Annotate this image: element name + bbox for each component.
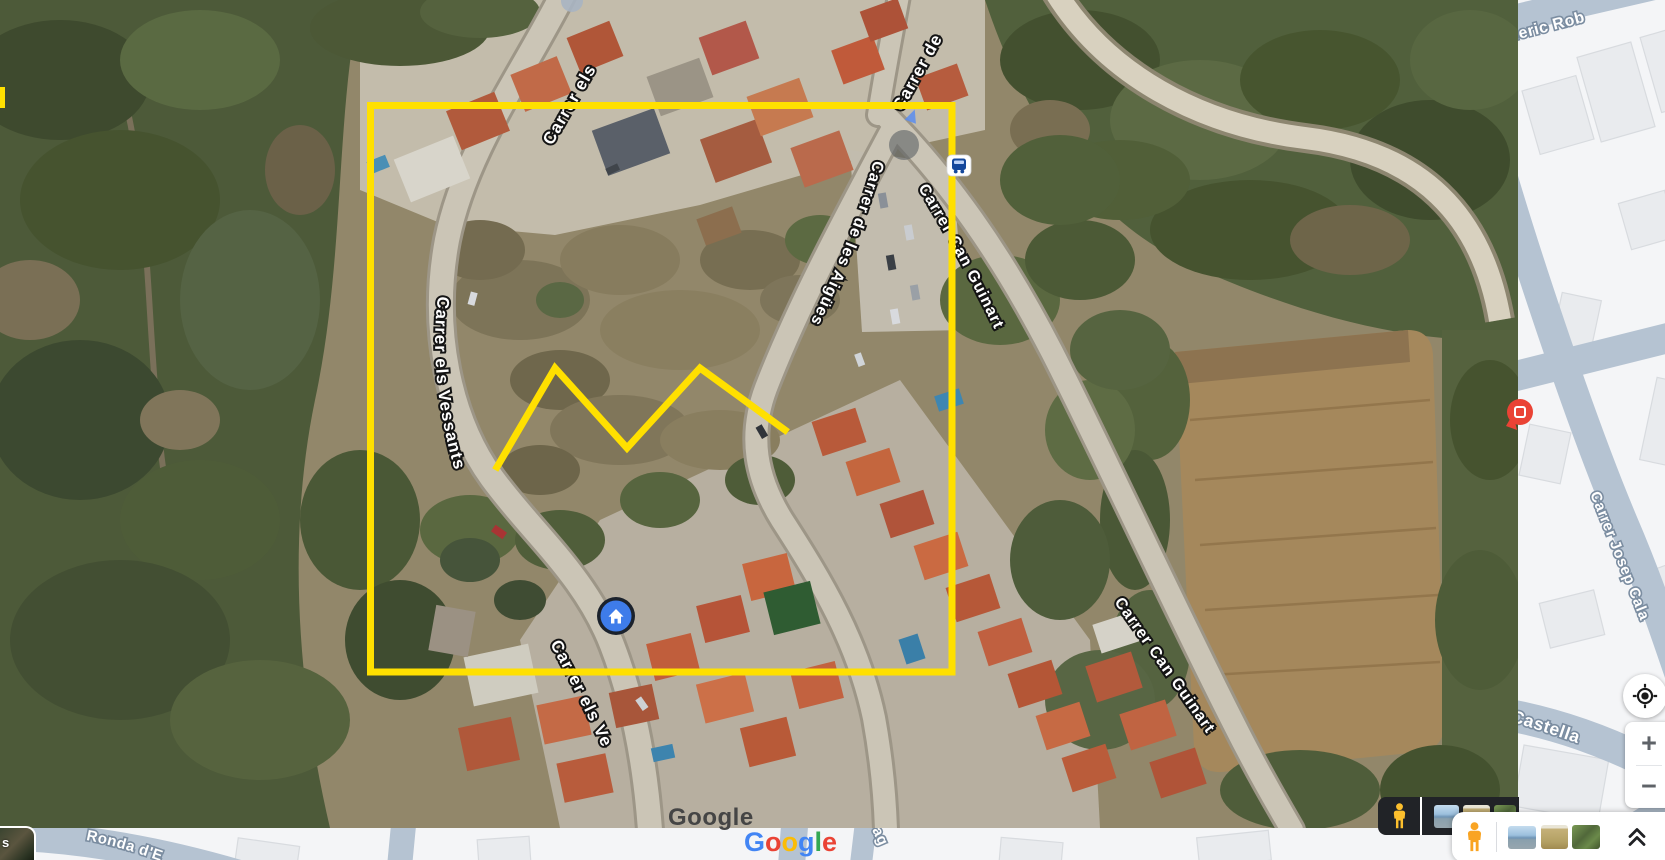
my-location-icon — [1632, 683, 1658, 709]
google-watermark: Google — [668, 804, 754, 832]
google-maps-canvas[interactable]: oderic Rob Carrer Josep Cala r Castella … — [0, 0, 1665, 860]
route-node-top[interactable] — [561, 0, 583, 12]
photo-bar-light — [1452, 812, 1665, 860]
my-location-button[interactable] — [1623, 674, 1665, 718]
zoom-in-button[interactable]: + — [1625, 722, 1665, 765]
google-logo[interactable]: Google — [744, 827, 837, 858]
layers-preview-thumbnail[interactable]: s — [0, 826, 36, 860]
photo-thumbnail-coastline[interactable] — [1508, 826, 1536, 849]
bus-stop-marker[interactable] — [947, 155, 971, 176]
zoom-control: + − — [1625, 722, 1665, 808]
home-marker[interactable] — [597, 597, 635, 635]
route-node[interactable] — [889, 107, 920, 160]
photo-thumbnail-field[interactable] — [1541, 825, 1568, 849]
pegman-icon[interactable] — [1391, 803, 1408, 829]
bar-divider — [1496, 822, 1497, 852]
red-poi-marker[interactable] — [1506, 399, 1533, 430]
bar-divider — [1420, 797, 1422, 835]
double-chevron-up-icon — [1624, 825, 1650, 849]
pegman-icon[interactable] — [1464, 822, 1485, 852]
collapse-button[interactable] — [1622, 822, 1652, 852]
zoom-out-button[interactable]: − — [1625, 766, 1665, 809]
layers-partial-label: s — [2, 835, 9, 850]
photo-thumbnail-vegetation[interactable] — [1572, 825, 1600, 849]
markers-layer — [0, 0, 1665, 860]
